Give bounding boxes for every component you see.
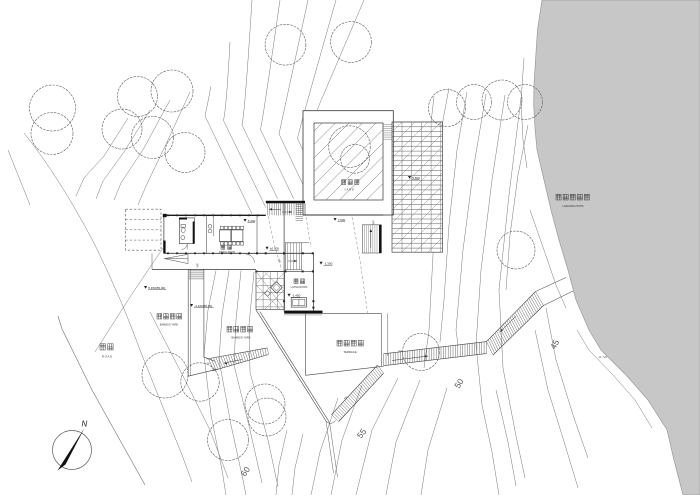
svg-text:11.720: 11.720 xyxy=(599,355,608,359)
svg-text:DINING ROOM: DINING ROOM xyxy=(219,252,235,254)
svg-text:BAMBOO YARD: BAMBOO YARD xyxy=(231,336,250,340)
svg-text:±0.000: ±0.000 xyxy=(270,247,279,251)
svg-text:5.500: 5.500 xyxy=(412,176,420,180)
svg-text:5.300: 5.300 xyxy=(248,219,256,223)
svg-text:R O A D: R O A D xyxy=(102,355,112,359)
svg-text:TERRACE: TERRACE xyxy=(343,350,356,354)
svg-text:BAMBOO YARD: BAMBOO YARD xyxy=(160,324,179,327)
svg-text:Y A R D: Y A R D xyxy=(344,188,354,192)
svg-text:N: N xyxy=(82,420,88,429)
svg-text:7.500: 7.500 xyxy=(338,218,346,222)
svg-text:LAKESIDE PATHS: LAKESIDE PATHS xyxy=(563,205,584,208)
svg-text:LIVING ROOM: LIVING ROOM xyxy=(291,286,308,289)
